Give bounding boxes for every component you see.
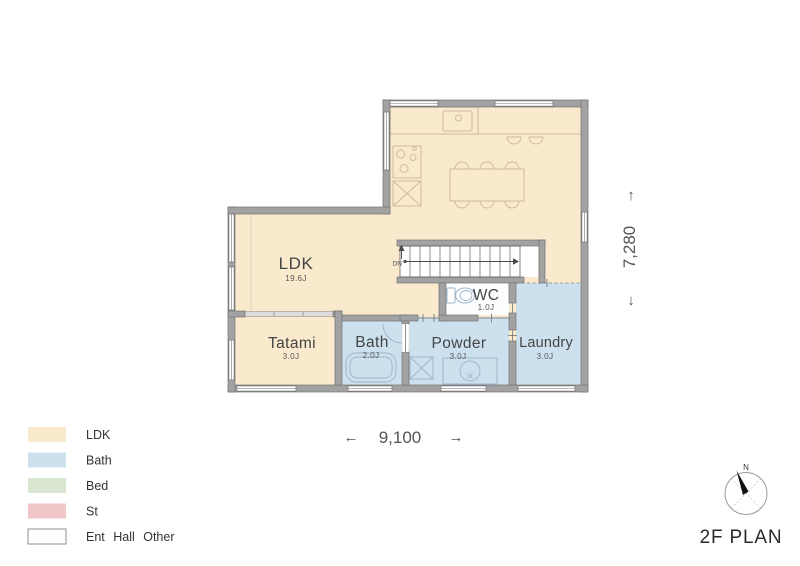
wall-laundry-left [509,341,516,385]
plan-title: 2F PLAN [700,527,783,548]
compass-north-label: N [743,463,749,472]
stairs-dn-label: DN [393,261,403,268]
room-label-ldk: LDK [279,254,314,273]
window [348,386,392,391]
legend-swatch-other [28,529,66,544]
window [582,212,587,242]
wall-right [581,100,588,392]
wall-bath-right [402,352,409,385]
window [237,386,296,391]
wall-step [228,207,390,214]
room-size-wc: 1.0J [478,303,495,312]
window [518,386,575,391]
room-label-tatami: Tatami [268,335,316,352]
wall-laundry-left [509,283,516,303]
window [229,340,234,380]
room-size-powder: 3.0J [450,352,467,361]
height-arrow-down: ↓ [627,292,635,309]
window [384,112,389,170]
wall-tatami-top [228,311,245,317]
legend-swatch-bath [28,453,66,468]
wall-wc-bottom [439,315,478,321]
width-arrow-right: → [449,429,464,446]
toilet-icon [447,288,475,303]
wall-bath-left [335,311,342,385]
room-label-wc: WC [473,287,500,304]
tatami-sliding-door [245,312,333,316]
legend-swatch-bed [28,478,66,493]
floor-plan-page: DN LDK 19.6J Tatami 3.0J Bath 2. [0,0,800,566]
dimension-width: ← 9,100 → [344,428,464,447]
room-label-bath: Bath [355,334,389,351]
wall-stairs-bottom [397,277,524,283]
room-label-powder: Powder [432,335,487,352]
dimension-height: ↑ 7,280 ↓ [620,187,639,309]
wall-laundry-left [509,313,516,330]
height-arrow-up: ↑ [627,187,635,204]
legend: LDK Bath Bed St Ent Hall Other [28,427,175,544]
room-size-ldk: 19.6J [285,274,307,283]
legend-label-ldk: LDK [86,428,111,442]
legend-swatch-ldk [28,427,66,442]
room-size-bath: 2.0J [363,351,380,360]
height-dimension-value: 7,280 [620,226,639,269]
floor-plan-canvas: DN LDK 19.6J Tatami 3.0J Bath 2. [0,0,800,566]
window [229,214,234,262]
legend-swatch-st [28,504,66,519]
legend-label-st: St [86,505,98,519]
window [441,386,486,391]
wall-stairs-right [539,240,545,283]
window [229,267,234,310]
room-size-tatami: 3.0J [283,352,300,361]
compass: N [725,463,767,515]
width-dimension-value: 9,100 [379,428,422,447]
width-arrow-left: ← [344,429,359,446]
legend-label-bath: Bath [86,454,112,468]
legend-label-bed: Bed [86,479,108,493]
wall-bath-top [342,315,409,321]
floor-laundry [516,283,581,385]
wall-stairs-top [397,240,545,246]
room-size-laundry: 3.0J [537,352,554,361]
legend-label-other: Ent Hall Other [86,530,175,544]
window [495,101,553,106]
room-label-laundry: Laundry [519,335,573,351]
wall-powder-top [400,315,418,321]
window [390,101,438,106]
